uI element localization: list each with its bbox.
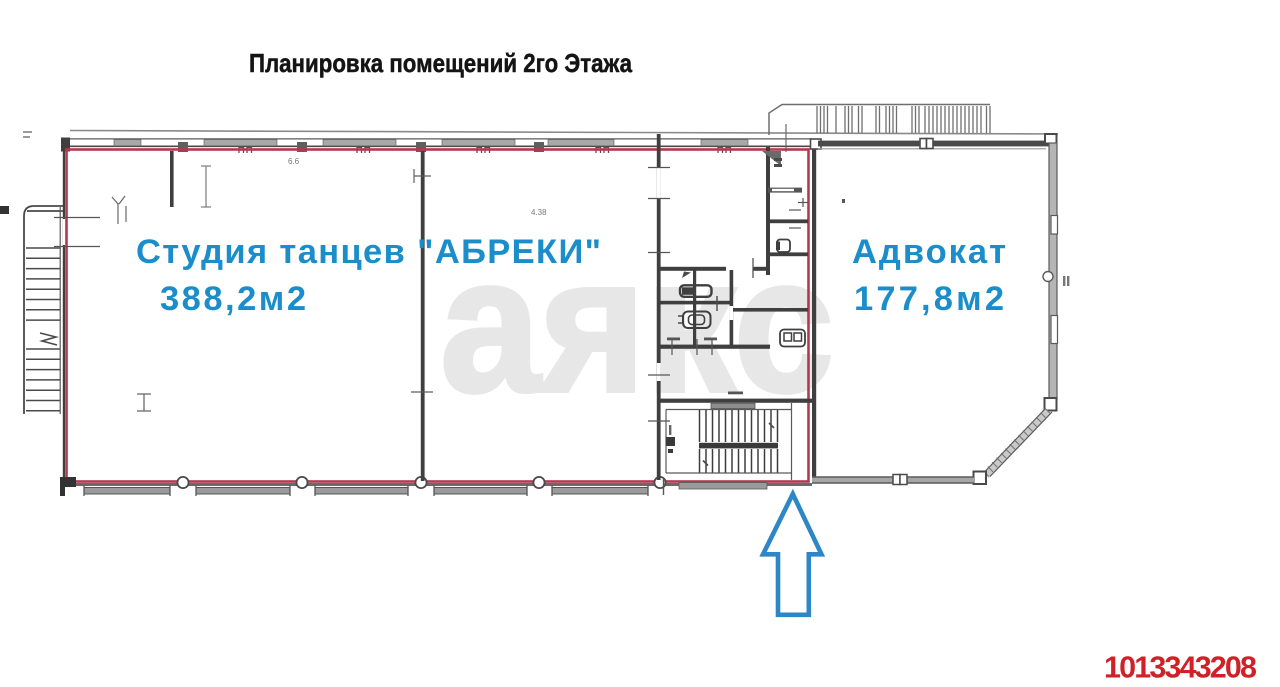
svg-text:6.6: 6.6 [288,157,300,166]
svg-text:4.38: 4.38 [531,208,547,217]
svg-text:Планировка помещений 2го Этажа: Планировка помещений 2го Этажа [249,48,632,78]
svg-text:177,8м2: 177,8м2 [854,280,1004,318]
svg-text:Студия танцев "АБРЕКИ": Студия танцев "АБРЕКИ" [136,233,601,271]
svg-text:388,2м2: 388,2м2 [160,280,306,318]
svg-text:1013343208: 1013343208 [1104,651,1257,685]
svg-text:Адвокат: Адвокат [852,233,1006,271]
